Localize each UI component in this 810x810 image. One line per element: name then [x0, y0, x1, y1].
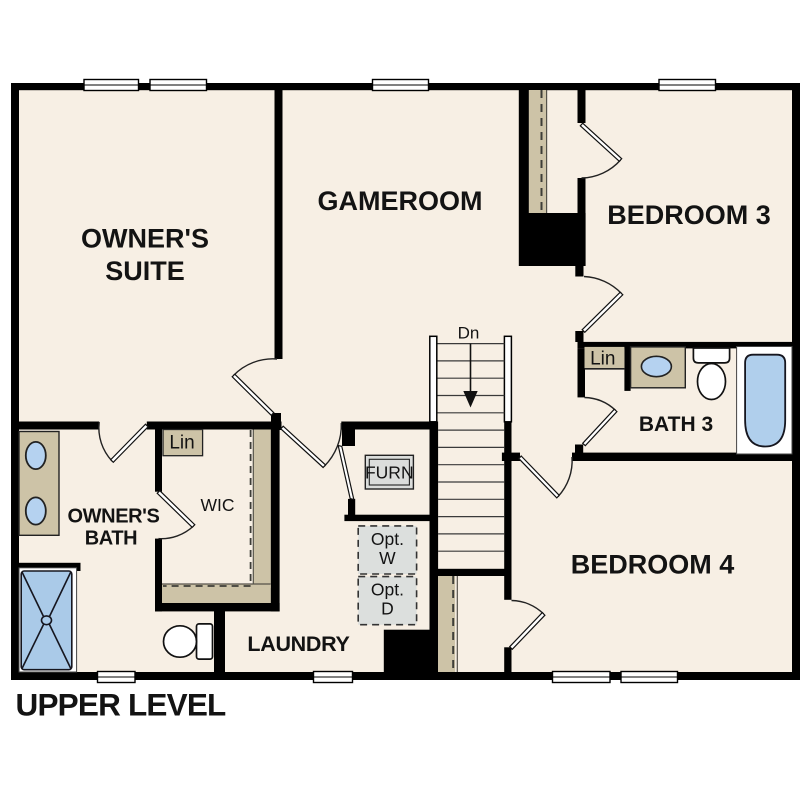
- svg-text:BEDROOM 3: BEDROOM 3: [607, 200, 771, 230]
- svg-text:UPPER LEVEL: UPPER LEVEL: [16, 687, 227, 723]
- svg-text:Lin: Lin: [169, 433, 194, 454]
- svg-text:FURN: FURN: [365, 463, 414, 483]
- svg-text:Opt.: Opt.: [371, 580, 404, 600]
- svg-text:Dn: Dn: [458, 324, 480, 343]
- svg-text:BATH 3: BATH 3: [639, 413, 713, 436]
- svg-text:Opt.: Opt.: [371, 529, 404, 549]
- svg-text:Lin: Lin: [590, 349, 615, 370]
- svg-text:WIC: WIC: [200, 495, 234, 515]
- svg-text:SUITE: SUITE: [105, 256, 185, 286]
- svg-text:OWNER'S: OWNER'S: [81, 224, 209, 254]
- svg-text:BEDROOM 4: BEDROOM 4: [571, 550, 735, 580]
- svg-text:BATH: BATH: [85, 528, 137, 550]
- svg-text:D: D: [381, 599, 394, 619]
- svg-text:OWNER'S: OWNER'S: [68, 505, 160, 527]
- svg-text:W: W: [379, 548, 396, 568]
- svg-text:LAUNDRY: LAUNDRY: [247, 632, 349, 656]
- svg-text:GAMEROOM: GAMEROOM: [318, 186, 483, 216]
